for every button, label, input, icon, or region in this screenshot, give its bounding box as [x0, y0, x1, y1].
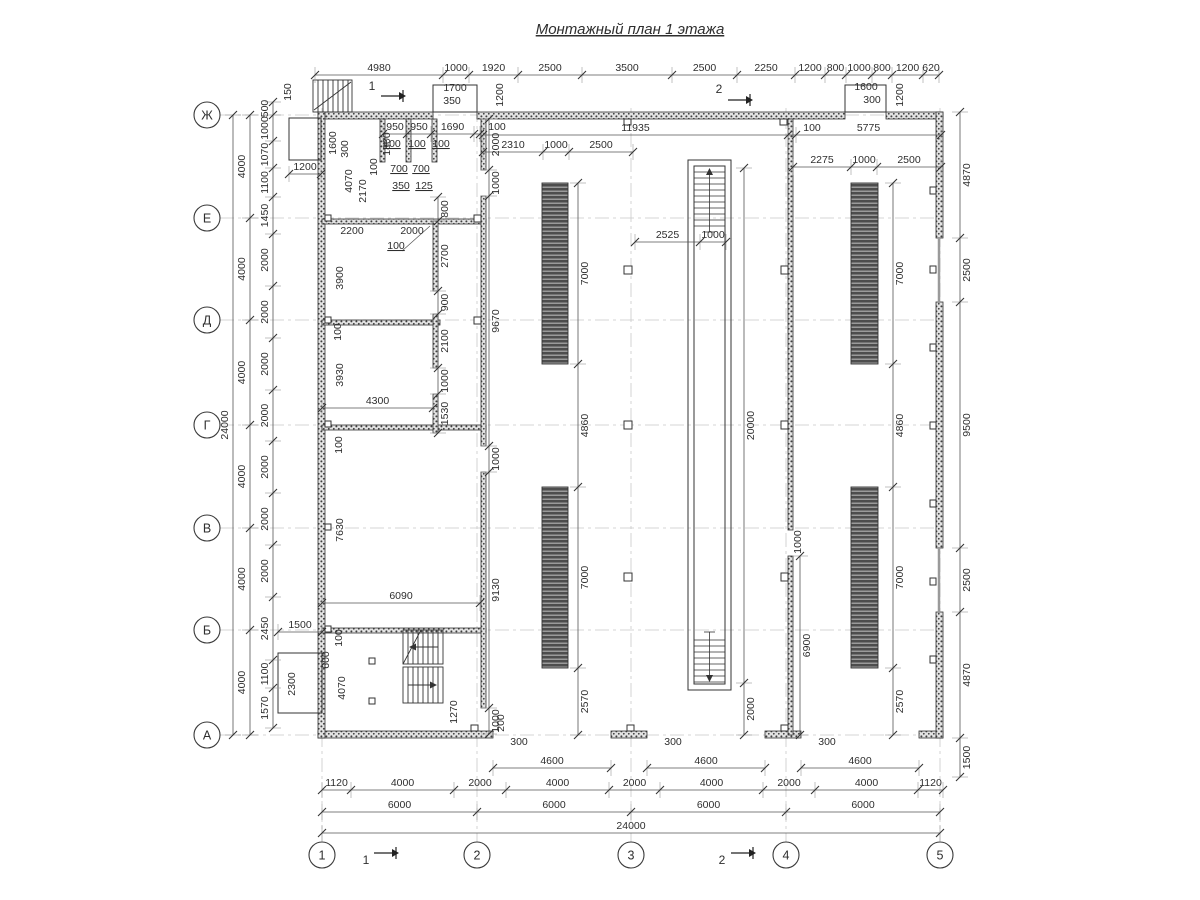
dim-label: 1100	[259, 171, 271, 194]
dim-label: 700	[412, 163, 430, 175]
dim-label: 9500	[961, 413, 973, 437]
dim-label: 2000	[259, 352, 271, 376]
wall-corridor-b	[481, 196, 486, 446]
dim-label: 1920	[482, 62, 506, 74]
axis-bubble-label: А	[203, 728, 212, 742]
dim-label: 4860	[894, 414, 906, 438]
dim-label: 1000	[701, 229, 725, 241]
wall-corridor-a	[481, 119, 486, 170]
dim-label: 2250	[754, 62, 778, 74]
dim-label: 1000	[444, 62, 468, 74]
dim-label: 800	[827, 62, 845, 74]
dim-label: 4070	[336, 676, 348, 700]
dim-label: 100	[488, 121, 506, 133]
column	[624, 266, 632, 274]
dim-label: 5775	[857, 122, 881, 134]
dim-label: 4000	[236, 671, 248, 695]
dim-label: 1100	[259, 663, 271, 686]
dim-label: 600	[320, 651, 332, 669]
conveyor-1	[542, 183, 568, 364]
dim-label: 700	[390, 163, 408, 175]
axis-bubble-label: Б	[203, 623, 211, 637]
wall-top-1	[318, 112, 433, 119]
dim-label: 100	[368, 158, 380, 176]
axis-bubble-label: В	[203, 521, 211, 535]
dim-label: 6000	[388, 799, 412, 811]
dim-label: 4600	[848, 755, 872, 767]
dim-label: 11935	[621, 122, 650, 134]
dim-label: 2000	[259, 404, 271, 428]
dim-label: 4870	[961, 663, 973, 687]
dim-label: 950	[410, 121, 428, 133]
dim-label: 1690	[441, 121, 465, 133]
dim-label: 2000	[490, 133, 502, 157]
dim-label: 2500	[961, 258, 973, 282]
dim-label: 100	[383, 138, 401, 150]
dim-label: 4000	[236, 567, 248, 591]
dim-label: 7000	[579, 566, 591, 590]
dim-label: 300	[339, 140, 351, 158]
dim-label: 2275	[810, 154, 834, 166]
dim-label: 2500	[897, 154, 921, 166]
dim-label: 1120	[325, 777, 348, 789]
dim-label: 2450	[259, 617, 271, 641]
dim-label: 1000	[792, 530, 804, 554]
dim-label: 20000	[745, 411, 757, 440]
dim-label: 4000	[236, 361, 248, 385]
dim-label: 500	[259, 100, 271, 118]
dim-label: 1120	[919, 777, 942, 789]
section-mark-label: 2	[716, 82, 723, 96]
dim-label: 2000	[259, 507, 271, 531]
drawing-title: Монтажный план 1 этажа	[536, 21, 725, 38]
wall-right-2	[936, 302, 943, 548]
dim-label: 9130	[490, 578, 502, 602]
dim-label: 900	[439, 294, 451, 312]
dim-label: 350	[443, 95, 461, 107]
axis-bubble-label: Ж	[201, 108, 213, 122]
wall-part1-b	[433, 314, 438, 368]
dim-label: 2000	[777, 777, 801, 789]
dim-label: 3500	[615, 62, 639, 74]
dim-label: 125	[415, 180, 433, 192]
dim-label: 300	[863, 94, 881, 106]
dim-label: 2500	[589, 139, 613, 151]
axis-bubble-label: 5	[937, 848, 944, 862]
dim-label: 300	[818, 736, 836, 748]
axis-bubble-label: 3	[628, 848, 635, 862]
conveyor-2	[542, 487, 568, 668]
wall-part1-c	[433, 394, 438, 433]
dim-label: 2000	[468, 777, 492, 789]
section-mark-label: 1	[369, 79, 376, 93]
dim-label: 2000	[259, 300, 271, 324]
dim-label: 6900	[801, 634, 813, 658]
axis-bubble-label: Г	[204, 418, 211, 432]
wall-int-g	[322, 425, 486, 430]
axis-bubble-label: 1	[319, 848, 326, 862]
wall-part1-a	[433, 221, 438, 291]
dim-label: 24000	[219, 410, 231, 439]
dim-label: 7000	[894, 566, 906, 590]
dim-label: 2570	[894, 690, 906, 714]
dim-label: 4600	[540, 755, 564, 767]
drawing-page: Монтажный план 1 этажа	[0, 0, 1200, 900]
dim-label: 1530	[439, 402, 451, 426]
wall-right-1	[936, 112, 943, 238]
dim-label: 4000	[546, 777, 570, 789]
dim-label: 100	[387, 240, 405, 252]
dim-label: 2000	[259, 248, 271, 272]
dim-label: 6000	[851, 799, 875, 811]
dim-label: 300	[510, 736, 528, 748]
dim-label: 150	[282, 83, 294, 101]
dim-label: 200	[495, 714, 507, 732]
dim-label: 2500	[538, 62, 562, 74]
dim-label: 2700	[439, 244, 451, 268]
dim-label: 800	[439, 200, 451, 218]
dim-label: 1450	[259, 204, 271, 228]
dim-label: 3930	[334, 363, 346, 387]
dim-label: 1200	[894, 83, 906, 107]
floor-plan-drawing: Монтажный план 1 этажа	[0, 0, 1200, 900]
dim-label: 1200	[798, 62, 822, 74]
dim-label: 4000	[236, 155, 248, 179]
dim-label: 1000	[852, 154, 876, 166]
dim-label: 2570	[579, 690, 591, 714]
wall-right-3	[936, 612, 943, 738]
dim-label: 2300	[286, 672, 298, 696]
dim-label: 1000	[490, 171, 502, 195]
dim-label: 800	[873, 62, 891, 74]
dim-label: 1000	[439, 369, 451, 393]
dim-label: 2170	[357, 179, 369, 203]
dim-label: 4600	[694, 755, 718, 767]
dim-label: 1200	[494, 83, 506, 107]
dim-label: 1200	[293, 161, 317, 173]
wall-int-e	[322, 219, 486, 224]
dim-label: 2500	[961, 568, 973, 592]
dim-label: 4070	[343, 169, 355, 193]
section-mark-label: 1	[363, 853, 370, 867]
dim-label: 4870	[961, 163, 973, 187]
dim-label: 2200	[340, 225, 364, 237]
dim-label: 1570	[259, 696, 271, 720]
dim-label: 2310	[501, 139, 525, 151]
dim-label: 100	[333, 629, 345, 647]
dim-label: 950	[386, 121, 404, 133]
wall-right-int-b	[788, 556, 793, 735]
wall-int-b	[322, 628, 486, 633]
dim-label: 100	[432, 138, 450, 150]
dim-label: 3900	[334, 266, 346, 290]
axis-bubble-label: Е	[203, 211, 211, 225]
dim-label: 7000	[894, 262, 906, 286]
dim-label: 100	[333, 436, 345, 454]
dim-label: 6000	[542, 799, 566, 811]
axis-bubble-label: Д	[203, 313, 212, 327]
dim-label: 100	[332, 323, 344, 341]
dim-label: 350	[392, 180, 410, 192]
dim-label: 4000	[236, 257, 248, 281]
dim-label: 7000	[579, 262, 591, 286]
dim-label: 2525	[656, 229, 680, 241]
dim-label: 1000	[259, 116, 271, 140]
dim-label: 1500	[288, 619, 312, 631]
conveyor-3	[851, 183, 878, 364]
dim-label: 1500	[961, 746, 973, 770]
dim-label: 4000	[391, 777, 415, 789]
wall-top-2	[477, 112, 845, 119]
dim-label: 1600	[327, 131, 339, 155]
dim-label: 2100	[439, 329, 451, 353]
dim-label: 4000	[236, 465, 248, 489]
dim-label: 4860	[579, 414, 591, 438]
dim-label: 7630	[334, 518, 346, 542]
axis-bubble-label: 2	[474, 848, 481, 862]
dim-label: 1200	[896, 62, 920, 74]
wall-bottom-1	[318, 731, 493, 738]
dim-label: 300	[664, 736, 682, 748]
dim-label: 4000	[700, 777, 724, 789]
dim-label: 6000	[697, 799, 721, 811]
section-mark-label: 2	[719, 853, 726, 867]
dim-label: 2000	[623, 777, 647, 789]
dim-label: 2000	[745, 697, 757, 721]
dim-label: 1600	[854, 81, 878, 93]
dim-label: 2000	[259, 455, 271, 479]
dim-label: 1000	[490, 447, 502, 471]
conveyor-4	[851, 487, 878, 668]
wall-bottom-pier-2	[611, 731, 647, 738]
dim-label: 6090	[389, 590, 413, 602]
wall-right-int-a	[788, 119, 793, 530]
dim-label: 1700	[443, 82, 467, 94]
dim-label: 2500	[693, 62, 717, 74]
dim-label: 4300	[366, 395, 390, 407]
dim-label: 620	[922, 62, 940, 74]
dim-label: 2000	[259, 559, 271, 583]
wall-bottom-pier-3	[765, 731, 801, 738]
dim-label: 1000	[847, 62, 871, 74]
dim-label: 4980	[367, 62, 391, 74]
dim-label: 1000	[544, 139, 568, 151]
dim-label: 4000	[855, 777, 879, 789]
dim-label: 24000	[616, 820, 645, 832]
dim-label: 1270	[448, 700, 460, 724]
dim-label: 100	[408, 138, 426, 150]
wall-corridor-c	[481, 472, 486, 708]
dim-label: 100	[803, 122, 821, 134]
dim-label: 1070	[259, 143, 271, 167]
dim-label: 2000	[400, 225, 424, 237]
wall-top-3	[886, 112, 943, 119]
dim-label: 9670	[490, 309, 502, 333]
axis-bubble-label: 4	[783, 848, 790, 862]
